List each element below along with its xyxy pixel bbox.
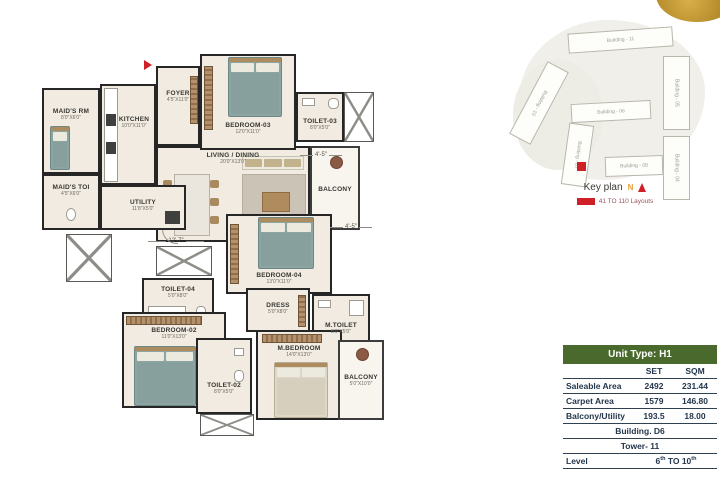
table-row: Saleable Area 2492 231.44 — [563, 379, 717, 394]
sink — [302, 98, 315, 106]
room-label: BALCONY 5'0"X10'0" — [340, 374, 382, 387]
room-label: TOILET-04 5'0"X8'0" — [144, 286, 212, 299]
key-plan-title: Key plan — [584, 182, 623, 193]
toilet-fixture — [328, 98, 339, 109]
tower-row: Tower- 11 — [563, 439, 717, 454]
stove — [106, 114, 116, 126]
dining-chair — [210, 216, 219, 224]
keyplan-building-08: Building - 08 — [605, 155, 664, 177]
floor-plan-page: LIVING / DINING 20'0"X13'0" BALCONY — [0, 0, 720, 480]
room-bedroom-04: BEDROOM-04 13'0"X11'0" — [226, 214, 332, 294]
wardrobe — [204, 66, 213, 130]
dimension-label: 4'-5" — [300, 152, 342, 158]
room-label: BEDROOM-04 13'0"X11'0" — [228, 272, 330, 285]
shower — [349, 300, 364, 316]
bed — [258, 217, 314, 269]
sink — [234, 348, 244, 356]
dining-chair — [210, 180, 219, 188]
keyplan-building-05: Building - 05 — [663, 56, 690, 130]
room-utility: UTILITY 11'8"X5'0" — [100, 185, 186, 230]
level-row: Level 6th TO 10th — [563, 454, 717, 469]
bed — [228, 57, 282, 117]
toilet-fixture — [66, 208, 76, 221]
room-kitchen: KITCHEN 10'0"X11'0" — [100, 84, 156, 185]
wardrobe — [126, 316, 202, 325]
room-label: MAID'S RM 8'0"X6'0" — [44, 108, 98, 121]
wardrobe — [298, 295, 306, 327]
room-label: TOILET-03 8'0"X5'0" — [298, 118, 342, 131]
room-foyer: FOYER 4'5"X11'0" — [156, 66, 200, 146]
wardrobe — [230, 224, 239, 284]
room-toilet-02: TOILET-02 8'0"X5'0" — [196, 338, 252, 414]
room-label: TOILET-02 8'0"X5'0" — [198, 382, 250, 395]
legend-label: 41 TO 110 Layouts — [599, 198, 654, 205]
kitchen-counter — [104, 88, 118, 182]
key-plan-caption: Key plan N — [513, 182, 717, 193]
level-label: Level — [563, 456, 635, 466]
washing-machine — [165, 211, 180, 224]
unit-location-marker — [577, 162, 586, 171]
unit-info-table: Unit Type: H1 SET SQM Saleable Area 2492… — [563, 345, 717, 469]
bed — [134, 346, 196, 406]
key-plan-legend: 41 TO 110 Layouts — [513, 198, 717, 205]
room-label: BALCONY — [312, 186, 358, 193]
table-column-header-row: SET SQM — [563, 364, 717, 379]
unit-type-header: Unit Type: H1 — [563, 345, 717, 364]
level-value: 6th TO 10th — [635, 456, 717, 466]
building-row: Building. D6 — [563, 424, 717, 439]
room-label: MAID'S TOI 4'5"X6'0" — [44, 184, 98, 197]
col-set: SET — [635, 366, 673, 376]
room-label: BEDROOM-03 12'0"X11'0" — [202, 122, 294, 135]
room-bedroom-03: BEDROOM-03 12'0"X11'0" — [200, 54, 296, 150]
dimension-label: 4'-5" — [330, 224, 372, 230]
dining-chair — [210, 198, 219, 206]
bed — [274, 362, 328, 418]
shaft-box — [156, 246, 212, 276]
room-maids-rm: MAID'S RM 8'0"X6'0" — [42, 88, 100, 174]
shaft-box — [200, 414, 254, 436]
room-m-bedroom: M.BEDROOM 14'0"X13'0" — [256, 330, 342, 420]
table-row: Carpet Area 1579 146.80 — [563, 394, 717, 409]
entry-arrow-icon — [144, 60, 152, 70]
dimension-label: 12'-7" — [148, 238, 204, 244]
shoe-cabinet — [190, 76, 198, 124]
sink — [318, 300, 331, 308]
maid-bed — [50, 126, 70, 170]
room-label: KITCHEN 10'0"X11'0" — [114, 116, 154, 129]
fridge — [106, 142, 116, 154]
table-row: Balcony/Utility 193.5 18.00 — [563, 409, 717, 424]
room-maids-toi: MAID'S TOI 4'5"X6'0" — [42, 174, 100, 230]
shaft-box — [344, 92, 374, 142]
wardrobe — [262, 334, 322, 343]
floor-plan: LIVING / DINING 20'0"X13'0" BALCONY — [30, 46, 392, 438]
legend-swatch — [577, 198, 595, 205]
north-arrow-icon — [638, 183, 646, 192]
toilet-fixture — [234, 370, 244, 382]
plant-pot — [356, 348, 369, 361]
room-dress: DRESS 5'0"X8'0" — [246, 288, 310, 332]
room-toilet-03: TOILET-03 8'0"X5'0" — [296, 92, 344, 142]
north-label: N — [628, 183, 634, 192]
sofa — [242, 156, 304, 170]
col-sqm: SQM — [673, 366, 717, 376]
room-balcony-bottom: BALCONY 5'0"X10'0" — [338, 340, 384, 420]
coffee-table — [262, 192, 290, 212]
room-label: M.BEDROOM 14'0"X13'0" — [258, 345, 340, 358]
shaft-box — [66, 234, 112, 282]
key-plan: Building - 11 Building - 10 Building - 0… — [513, 10, 717, 210]
